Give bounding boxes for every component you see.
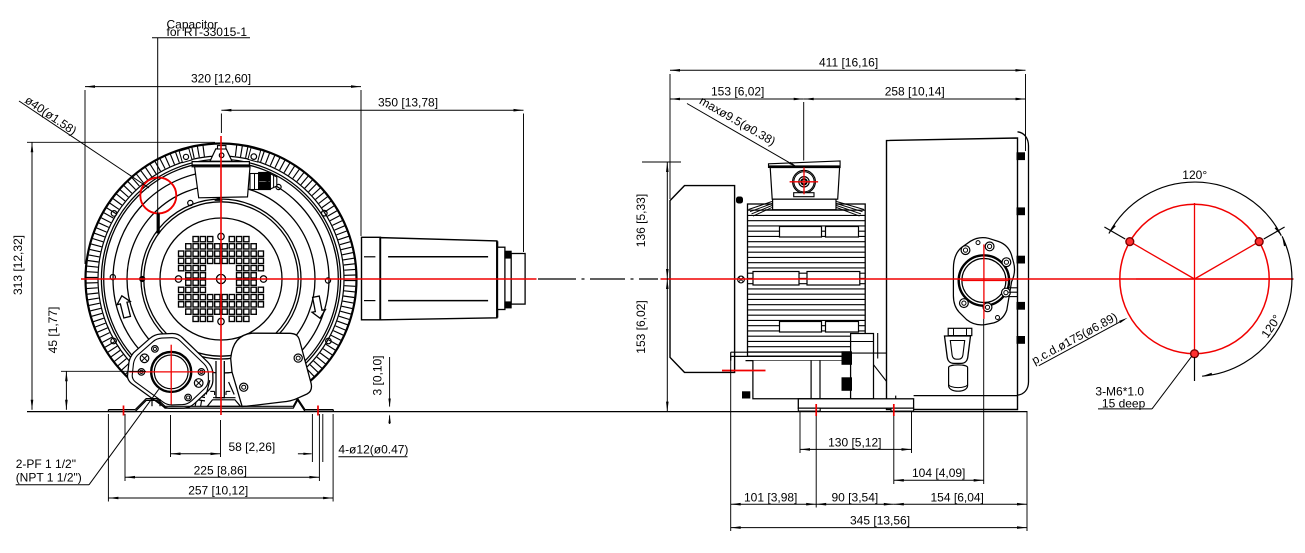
svg-text:maxø9.5(ø0.38): maxø9.5(ø0.38) xyxy=(697,94,778,149)
svg-text:153 [6,02]: 153 [6,02] xyxy=(711,84,764,98)
svg-text:154 [6,04]: 154 [6,04] xyxy=(931,491,984,505)
svg-text:411 [16,16]: 411 [16,16] xyxy=(819,56,878,70)
svg-text:104 [4,09]: 104 [4,09] xyxy=(912,466,965,480)
svg-text:345 [13,56]: 345 [13,56] xyxy=(850,513,910,527)
svg-text:2-PF 1 1/2": 2-PF 1 1/2" xyxy=(16,457,76,471)
svg-text:(NPT 1 1/2"): (NPT 1 1/2") xyxy=(16,471,82,485)
svg-text:350 [13,78]: 350 [13,78] xyxy=(378,96,438,110)
svg-text:58 [2,26]: 58 [2,26] xyxy=(229,440,276,454)
svg-text:p.c.d.ø175(ø6.89): p.c.d.ø175(ø6.89) xyxy=(1029,310,1120,368)
svg-text:15 deep: 15 deep xyxy=(1102,396,1146,410)
svg-text:for RT-33015-1: for RT-33015-1 xyxy=(167,25,248,39)
svg-text:136 [5,33]: 136 [5,33] xyxy=(634,194,648,247)
svg-text:120°: 120° xyxy=(1182,168,1207,182)
svg-text:153 [6,02]: 153 [6,02] xyxy=(634,300,648,353)
svg-text:101 [3,98]: 101 [3,98] xyxy=(744,491,797,505)
svg-text:45 [1,77]: 45 [1,77] xyxy=(46,307,60,354)
svg-text:258 [10,14]: 258 [10,14] xyxy=(885,84,945,98)
svg-text:320 [12,60]: 320 [12,60] xyxy=(191,72,251,86)
svg-text:4-ø12(ø0.47): 4-ø12(ø0.47) xyxy=(338,443,408,457)
svg-text:257 [10,12]: 257 [10,12] xyxy=(188,483,248,497)
svg-text:225 [8,86]: 225 [8,86] xyxy=(194,464,247,478)
svg-text:90 [3,54]: 90 [3,54] xyxy=(832,491,879,505)
svg-text:313 [12,32]: 313 [12,32] xyxy=(11,235,25,295)
svg-text:3 [0,10]: 3 [0,10] xyxy=(371,355,385,395)
svg-text:ø40(ø1.58): ø40(ø1.58) xyxy=(22,93,79,138)
svg-text:130 [5,12]: 130 [5,12] xyxy=(828,436,881,450)
